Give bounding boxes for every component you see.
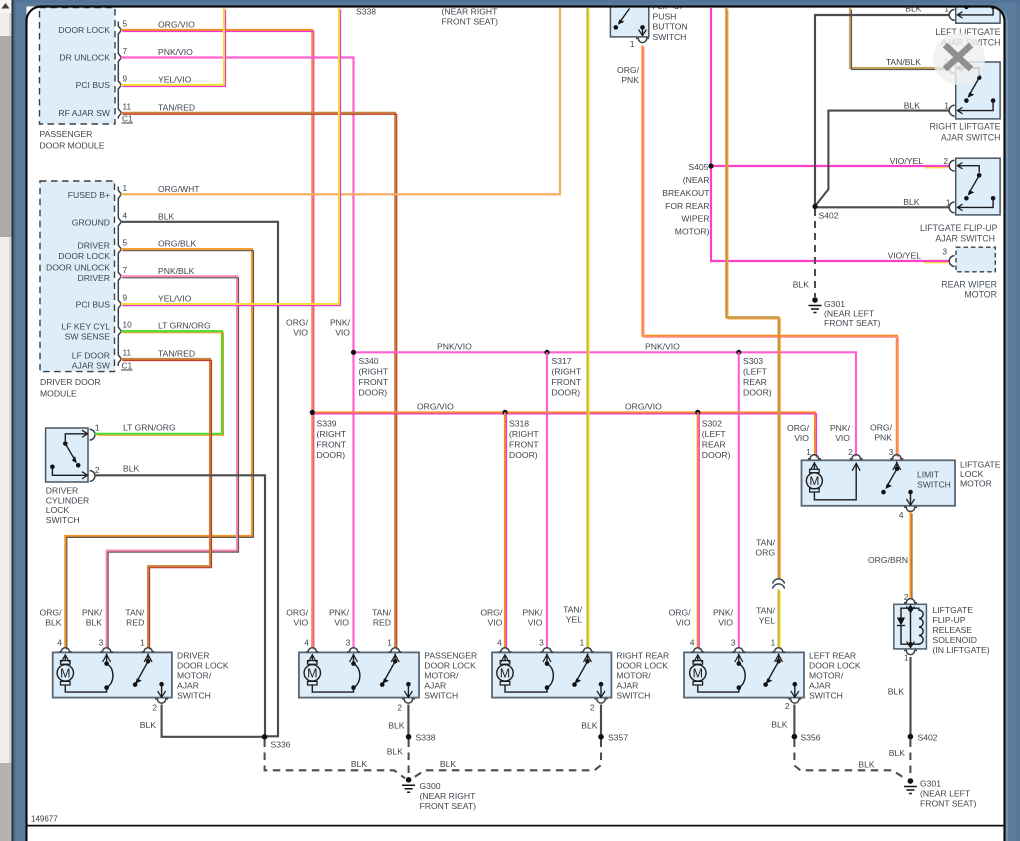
svg-text:S338: S338 [356, 7, 376, 17]
svg-text:1: 1 [806, 447, 811, 457]
svg-text:BLK: BLK [888, 687, 905, 697]
svg-text:3: 3 [942, 247, 947, 257]
svg-text:PNK/VIO: PNK/VIO [645, 342, 680, 352]
svg-text:ORG/: ORG/ [286, 318, 309, 328]
svg-text:PASSENGER: PASSENGER [424, 650, 477, 660]
svg-text:CYLINDER: CYLINDER [46, 496, 89, 506]
svg-text:SOLENOID: SOLENOID [933, 635, 977, 645]
svg-text:(RIGHT: (RIGHT [509, 429, 539, 439]
svg-text:BUTTON: BUTTON [653, 22, 688, 32]
svg-text:ORG/: ORG/ [669, 608, 692, 618]
svg-text:DOOR LOCK: DOOR LOCK [809, 660, 861, 670]
svg-text:TAN/: TAN/ [563, 605, 583, 615]
svg-text:(LEFT: (LEFT [743, 367, 768, 377]
svg-text:BLK: BLK [793, 280, 810, 290]
svg-text:3: 3 [346, 638, 351, 648]
svg-text:YEL: YEL [759, 616, 775, 626]
svg-text:BLK: BLK [903, 197, 920, 207]
svg-text:2: 2 [397, 703, 402, 713]
svg-text:GROUND: GROUND [72, 217, 110, 227]
svg-text:SWITCH: SWITCH [653, 32, 687, 42]
svg-text:VIO: VIO [334, 618, 349, 628]
svg-text:(NEAR: (NEAR [683, 175, 710, 185]
svg-text:SWITCH: SWITCH [177, 690, 211, 700]
svg-text:VIO: VIO [487, 618, 502, 628]
svg-text:S357: S357 [608, 733, 628, 743]
svg-text:(NEAR RIGHT: (NEAR RIGHT [442, 7, 499, 17]
svg-text:S318: S318 [509, 419, 529, 429]
svg-text:ORG/: ORG/ [286, 608, 309, 618]
svg-text:DOOR LOCK: DOOR LOCK [177, 660, 229, 670]
svg-text:TAN/: TAN/ [372, 608, 392, 618]
svg-text:VIO: VIO [835, 433, 850, 443]
svg-text:4: 4 [899, 510, 904, 520]
svg-text:MOTOR: MOTOR [960, 479, 992, 489]
svg-text:9: 9 [123, 74, 128, 84]
svg-text:VIO: VIO [293, 328, 308, 338]
svg-text:PNK/BLK: PNK/BLK [158, 266, 195, 276]
svg-text:S338: S338 [416, 733, 436, 743]
svg-text:BLK: BLK [904, 101, 921, 111]
svg-text:PNK: PNK [621, 75, 639, 85]
svg-text:2: 2 [785, 701, 790, 711]
svg-text:DOOR): DOOR) [317, 450, 346, 460]
svg-text:VIO: VIO [528, 618, 543, 628]
svg-text:ORG/: ORG/ [787, 423, 810, 433]
svg-text:AJAR SWITCH: AJAR SWITCH [935, 234, 995, 244]
svg-text:AJAR: AJAR [809, 680, 831, 690]
svg-text:FRONT: FRONT [359, 377, 389, 387]
svg-text:PNK/VIO: PNK/VIO [437, 342, 472, 352]
svg-text:ORG: ORG [755, 548, 775, 558]
svg-text:VIO: VIO [676, 618, 691, 628]
svg-text:TAN/: TAN/ [756, 538, 776, 548]
svg-text:3: 3 [731, 638, 736, 648]
svg-text:ORG/BRN: ORG/BRN [868, 555, 908, 565]
svg-text:DOOR): DOOR) [359, 388, 388, 398]
svg-text:LOCK: LOCK [46, 505, 70, 515]
svg-text:3: 3 [99, 638, 104, 648]
svg-text:3: 3 [889, 447, 894, 457]
svg-text:2: 2 [943, 156, 948, 166]
svg-text:AJAR SWITCH: AJAR SWITCH [941, 133, 1001, 143]
svg-text:TAN/: TAN/ [756, 606, 776, 616]
svg-text:ORG/VIO: ORG/VIO [417, 402, 454, 412]
svg-text:10: 10 [123, 320, 133, 330]
svg-text:ORG/: ORG/ [40, 608, 63, 618]
svg-text:YEL/VIO: YEL/VIO [158, 75, 192, 85]
svg-text:LIFTGATE FLIP-UP: LIFTGATE FLIP-UP [920, 223, 998, 233]
svg-text:BREAKOUT: BREAKOUT [662, 188, 710, 198]
svg-text:SW SENSE: SW SENSE [65, 332, 111, 342]
svg-text:(RIGHT: (RIGHT [317, 429, 347, 439]
svg-text:REAR WIPER: REAR WIPER [941, 280, 997, 290]
svg-text:MOTOR/: MOTOR/ [424, 670, 459, 680]
svg-text:DRIVER: DRIVER [177, 650, 209, 660]
svg-text:LF DOOR: LF DOOR [72, 350, 110, 360]
svg-text:1: 1 [580, 638, 585, 648]
svg-text:5: 5 [123, 238, 128, 248]
svg-text:RED: RED [373, 618, 391, 628]
svg-text:S302: S302 [702, 419, 722, 429]
svg-text:AJAR: AJAR [424, 680, 446, 690]
svg-text:BLK: BLK [158, 211, 175, 221]
svg-text:MOTOR/: MOTOR/ [616, 670, 651, 680]
svg-text:PUSH: PUSH [653, 11, 677, 21]
svg-text:TAN/BLK: TAN/BLK [886, 57, 921, 67]
svg-text:ORG/WHT: ORG/WHT [158, 184, 200, 194]
svg-text:DOOR UNLOCK: DOOR UNLOCK [46, 263, 110, 273]
svg-text:RIGHT REAR: RIGHT REAR [616, 650, 669, 660]
svg-text:BLK: BLK [581, 721, 598, 731]
svg-text:C1: C1 [122, 361, 133, 371]
svg-text:PCI BUS: PCI BUS [76, 300, 111, 310]
svg-text:DOOR LOCK: DOOR LOCK [58, 25, 110, 35]
svg-text:REAR: REAR [743, 377, 767, 387]
svg-text:FRONT SEAT): FRONT SEAT) [442, 17, 499, 27]
svg-text:LT GRN/ORG: LT GRN/ORG [158, 321, 211, 331]
svg-text:FRONT: FRONT [552, 377, 582, 387]
svg-text:(NEAR RIGHT: (NEAR RIGHT [420, 791, 477, 801]
svg-text:1: 1 [944, 101, 949, 111]
svg-text:2: 2 [152, 703, 157, 713]
svg-text:DRIVER: DRIVER [46, 486, 78, 496]
svg-text:RF AJAR SW: RF AJAR SW [58, 108, 110, 118]
svg-text:DOOR MODULE: DOOR MODULE [40, 141, 105, 151]
svg-text:DOOR LOCK: DOOR LOCK [58, 251, 110, 261]
svg-text:VIO: VIO [794, 433, 809, 443]
svg-text:S356: S356 [801, 733, 821, 743]
svg-text:4: 4 [690, 638, 695, 648]
svg-text:S303: S303 [743, 356, 763, 366]
svg-text:YEL/VIO: YEL/VIO [158, 294, 192, 304]
svg-text:SWITCH: SWITCH [46, 515, 80, 525]
svg-text:TAN/: TAN/ [125, 608, 145, 618]
svg-text:REAR: REAR [702, 440, 726, 450]
svg-text:M: M [307, 666, 317, 680]
svg-text:BLK: BLK [45, 618, 62, 628]
svg-text:RIGHT LIFTGATE: RIGHT LIFTGATE [929, 122, 1000, 132]
svg-text:FRONT SEAT): FRONT SEAT) [920, 799, 977, 809]
svg-text:S340: S340 [359, 356, 379, 366]
svg-text:2: 2 [848, 447, 853, 457]
svg-text:(NEAR LEFT: (NEAR LEFT [920, 789, 971, 799]
svg-text:9: 9 [123, 293, 128, 303]
svg-text:BLK: BLK [440, 759, 457, 769]
svg-text:VIO: VIO [335, 328, 350, 338]
svg-text:ORG/: ORG/ [617, 65, 640, 75]
svg-text:S339: S339 [317, 419, 337, 429]
svg-text:2: 2 [95, 465, 100, 475]
svg-text:DOOR LOCK: DOOR LOCK [424, 660, 476, 670]
svg-text:S405: S405 [688, 162, 708, 172]
svg-text:149677: 149677 [31, 815, 58, 824]
svg-text:PASSENGER: PASSENGER [40, 129, 93, 139]
svg-text:SWITCH: SWITCH [424, 690, 458, 700]
svg-text:DRIVER DOOR: DRIVER DOOR [40, 377, 101, 387]
svg-text:S317: S317 [552, 356, 572, 366]
svg-text:PNK/VIO: PNK/VIO [158, 47, 193, 57]
svg-text:LIFTGATE: LIFTGATE [960, 459, 1001, 469]
svg-text:4: 4 [304, 638, 309, 648]
svg-text:VIO/YEL: VIO/YEL [890, 156, 924, 166]
svg-text:1: 1 [771, 638, 776, 648]
svg-text:ORG/VIO: ORG/VIO [625, 402, 662, 412]
svg-text:ORG/BLK: ORG/BLK [158, 239, 196, 249]
svg-text:(NEAR LEFT: (NEAR LEFT [824, 309, 875, 319]
svg-text:PNK/: PNK/ [830, 423, 851, 433]
svg-text:FLIP-UP: FLIP-UP [933, 615, 966, 625]
svg-text:RED: RED [126, 618, 144, 628]
svg-text:TAN/RED: TAN/RED [158, 349, 195, 359]
svg-text:4: 4 [123, 210, 128, 220]
svg-text:DOOR): DOOR) [702, 450, 731, 460]
svg-text:1: 1 [904, 653, 909, 663]
svg-text:SWITCH: SWITCH [917, 479, 951, 489]
svg-text:S402: S402 [918, 733, 938, 743]
svg-text:ORG/: ORG/ [480, 608, 503, 618]
svg-text:PNK/: PNK/ [713, 608, 734, 618]
svg-text:LT GRN/ORG: LT GRN/ORG [123, 423, 176, 433]
svg-text:MOTOR/: MOTOR/ [177, 670, 212, 680]
svg-text:SWITCH: SWITCH [616, 690, 650, 700]
svg-text:11: 11 [123, 101, 132, 111]
svg-text:MODULE: MODULE [40, 389, 77, 399]
svg-text:M: M [500, 666, 510, 680]
svg-text:(RIGHT: (RIGHT [359, 367, 389, 377]
svg-text:FRONT: FRONT [317, 440, 347, 450]
svg-text:G301: G301 [920, 779, 941, 789]
svg-text:BLK: BLK [123, 464, 140, 474]
svg-text:2: 2 [590, 703, 595, 713]
svg-text:DRIVER: DRIVER [78, 241, 110, 251]
svg-text:LIFTGATE: LIFTGATE [933, 605, 974, 615]
svg-text:4: 4 [57, 638, 62, 648]
svg-text:C1: C1 [122, 114, 133, 124]
svg-text:VIO/YEL: VIO/YEL [888, 251, 922, 261]
svg-text:M: M [809, 474, 819, 488]
svg-text:PNK: PNK [874, 433, 892, 443]
svg-text:M: M [60, 666, 70, 680]
svg-text:DR UNLOCK: DR UNLOCK [59, 53, 110, 63]
svg-text:2: 2 [904, 592, 909, 602]
svg-text:G300: G300 [420, 781, 441, 791]
svg-text:G301: G301 [824, 299, 845, 309]
svg-text:YEL: YEL [566, 615, 582, 625]
svg-text:(IN LIFTGATE): (IN LIFTGATE) [933, 645, 990, 655]
svg-text:BLK: BLK [388, 721, 405, 731]
svg-text:DRIVER: DRIVER [78, 273, 110, 283]
svg-text:S402: S402 [819, 211, 839, 221]
svg-text:7: 7 [123, 46, 128, 56]
svg-text:PNK/: PNK/ [522, 608, 543, 618]
svg-text:BLK: BLK [351, 759, 368, 769]
svg-text:DOOR): DOOR) [743, 388, 772, 398]
svg-text:BLK: BLK [889, 748, 906, 758]
svg-text:(RIGHT: (RIGHT [552, 367, 582, 377]
svg-text:VIO: VIO [293, 618, 308, 628]
svg-text:FRONT SEAT): FRONT SEAT) [420, 801, 477, 811]
svg-text:1: 1 [140, 638, 145, 648]
svg-text:RELEASE: RELEASE [933, 625, 973, 635]
svg-text:MOTOR/: MOTOR/ [809, 670, 844, 680]
svg-text:DOOR): DOOR) [552, 388, 581, 398]
svg-text:11: 11 [123, 348, 132, 358]
svg-text:FUSED B+: FUSED B+ [68, 190, 110, 200]
svg-text:FRONT: FRONT [509, 440, 539, 450]
svg-text:MOTOR): MOTOR) [675, 227, 710, 237]
svg-text:LF KEY CYL: LF KEY CYL [61, 321, 110, 331]
svg-text:FOR REAR: FOR REAR [665, 201, 709, 211]
svg-text:WIPER: WIPER [681, 214, 709, 224]
svg-text:BLK: BLK [858, 760, 875, 770]
svg-text:DOOR): DOOR) [509, 450, 538, 460]
svg-text:VIO: VIO [718, 618, 733, 628]
svg-text:S336: S336 [271, 740, 291, 750]
svg-text:AJAR SW: AJAR SW [72, 361, 111, 371]
svg-text:ORG/: ORG/ [870, 423, 893, 433]
svg-text:LIMIT: LIMIT [917, 470, 940, 480]
svg-text:1: 1 [95, 422, 100, 432]
svg-text:LEFT REAR: LEFT REAR [809, 650, 856, 660]
svg-text:M: M [693, 666, 703, 680]
svg-text:AJAR: AJAR [616, 680, 638, 690]
svg-text:7: 7 [123, 265, 128, 275]
svg-text:MOTOR: MOTOR [964, 290, 997, 300]
svg-text:BLK: BLK [86, 618, 103, 628]
svg-text:AJAR: AJAR [177, 680, 199, 690]
svg-text:1: 1 [630, 39, 635, 49]
svg-text:LOCK: LOCK [960, 469, 984, 479]
svg-text:FRONT SEAT): FRONT SEAT) [824, 318, 881, 328]
svg-text:BLK: BLK [771, 720, 788, 730]
svg-text:PCI BUS: PCI BUS [76, 80, 111, 90]
svg-text:PNK/: PNK/ [330, 318, 351, 328]
svg-text:SWITCH: SWITCH [809, 690, 843, 700]
svg-text:TAN/RED: TAN/RED [158, 102, 195, 112]
svg-text:5: 5 [123, 19, 128, 29]
svg-text:(LEFT: (LEFT [702, 429, 727, 439]
svg-text:ORG/VIO: ORG/VIO [158, 20, 195, 30]
svg-text:1: 1 [123, 183, 128, 193]
svg-text:4: 4 [497, 638, 502, 648]
svg-text:PNK/: PNK/ [329, 608, 350, 618]
svg-text:BLK: BLK [387, 747, 404, 757]
svg-text:PNK/: PNK/ [82, 608, 103, 618]
svg-text:3: 3 [539, 638, 544, 648]
svg-text:BLK: BLK [140, 720, 157, 730]
svg-text:1: 1 [387, 638, 392, 648]
svg-text:DOOR LOCK: DOOR LOCK [616, 660, 668, 670]
